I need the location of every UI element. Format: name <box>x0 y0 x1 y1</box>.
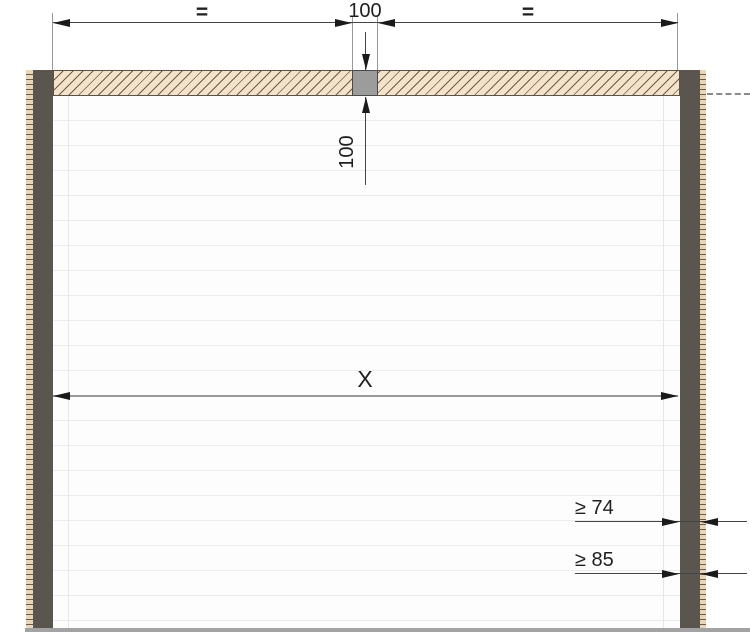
technical-drawing-canvas: = 100 = 100 X ≥ 74 ≥ 85 <box>0 0 750 640</box>
dimension-label-equal-right: = <box>508 2 548 23</box>
dimension-label-ge-85: ≥ 85 <box>575 550 635 570</box>
arrowhead-x-right <box>661 392 678 400</box>
frame-depth-85-dim-line <box>575 573 747 574</box>
arrowhead-85-left <box>662 570 679 578</box>
arrowhead-lintel-top <box>362 54 370 70</box>
arrowhead-lintel-bottom <box>362 97 370 113</box>
dimension-label-100-top: 100 <box>335 1 395 21</box>
center-mounting-block <box>352 70 378 96</box>
dimension-label-equal-left: = <box>182 2 222 23</box>
arrowhead-x-left <box>53 392 70 400</box>
extension-line-block-left <box>352 16 353 70</box>
dimension-label-ge-74: ≥ 74 <box>575 498 635 518</box>
arrowhead-top-far-left <box>53 19 70 27</box>
lintel-reference-dashed-line <box>707 93 750 95</box>
arrowhead-74-right <box>701 518 718 526</box>
dimension-label-x: X <box>335 368 395 391</box>
arrowhead-74-left <box>662 518 679 526</box>
clear-width-dim-line <box>53 395 678 397</box>
dimension-label-100-vertical: 100 <box>337 122 357 182</box>
right-wall-plaster-strip <box>700 70 706 628</box>
right-side-frame <box>680 70 700 628</box>
top-dimension-line <box>53 22 678 23</box>
arrowhead-85-right <box>701 570 718 578</box>
door-panel-left-inset-line <box>68 96 69 628</box>
door-panel-right-inset-line <box>663 96 664 628</box>
left-wall-plaster-strip <box>26 70 33 628</box>
left-side-frame <box>33 70 53 628</box>
floor-line <box>25 628 750 632</box>
arrowhead-top-far-right <box>661 19 678 27</box>
frame-depth-74-dim-line <box>575 521 747 522</box>
